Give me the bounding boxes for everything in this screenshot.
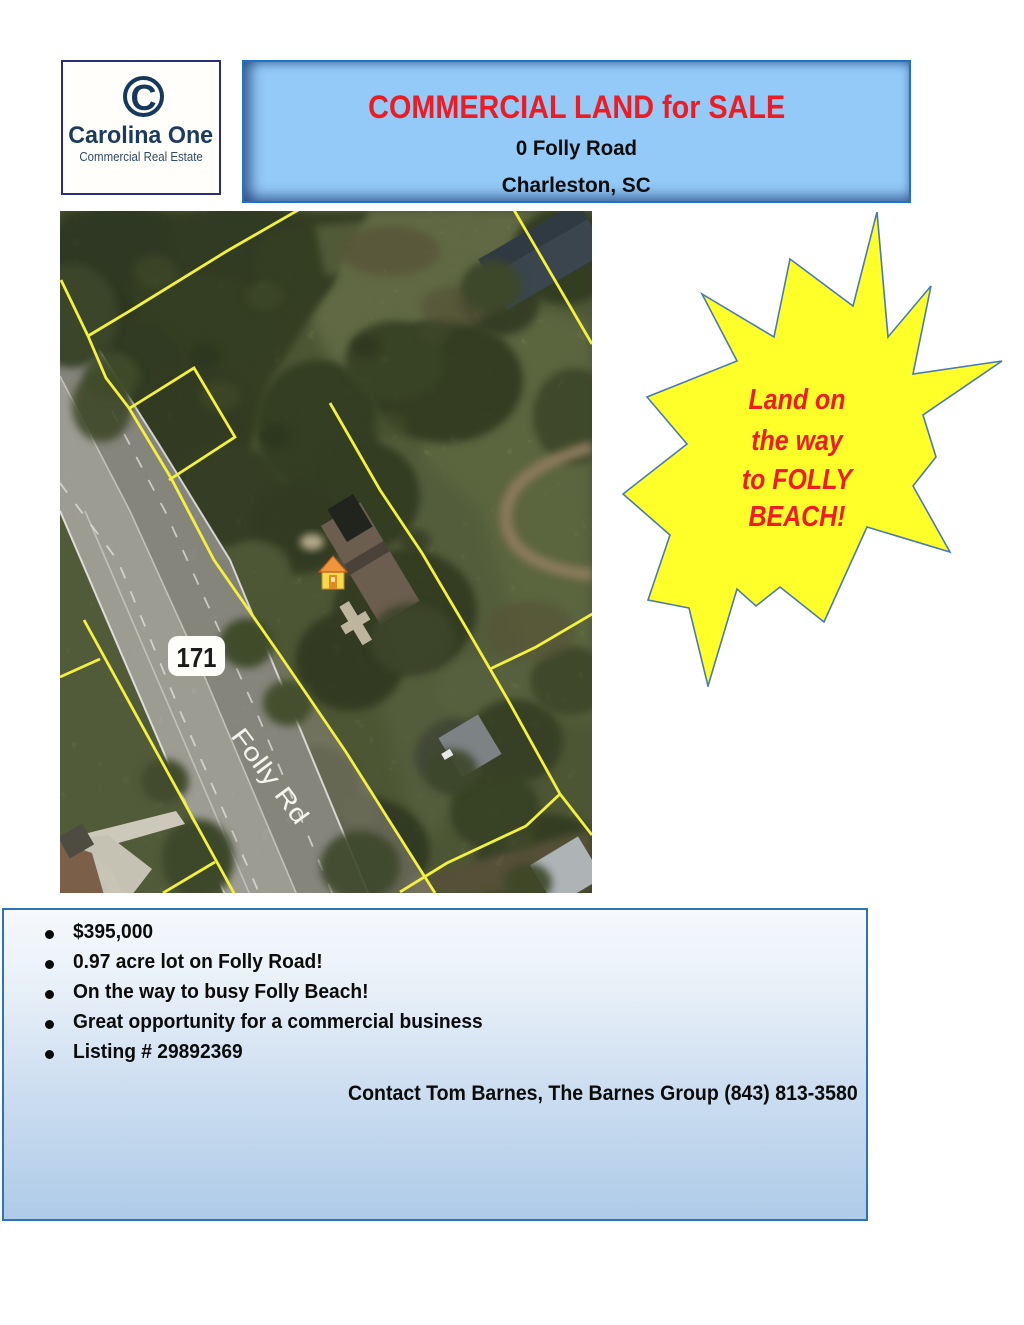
svg-text:to FOLLY: to FOLLY: [742, 463, 855, 495]
svg-text:the way: the way: [751, 424, 844, 456]
svg-text:C: C: [131, 77, 157, 118]
svg-text:171: 171: [177, 642, 217, 673]
svg-text:BEACH!: BEACH!: [749, 500, 846, 532]
svg-text:Land on: Land on: [749, 383, 846, 415]
